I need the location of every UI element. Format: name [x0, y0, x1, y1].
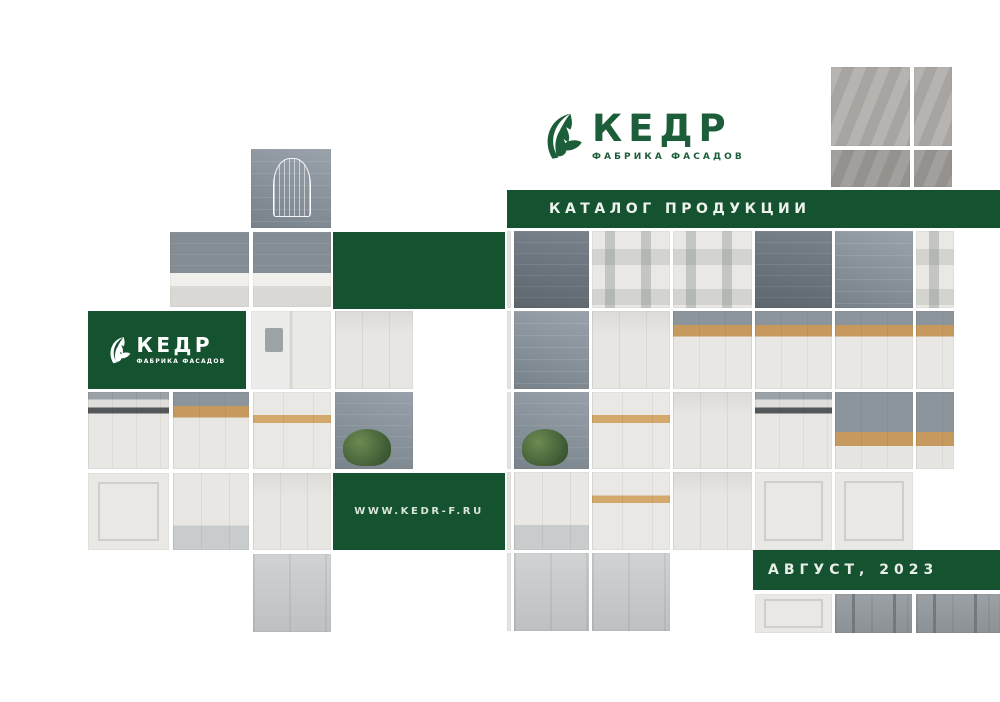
photo-tile: [253, 232, 331, 307]
photo-tile: [173, 473, 249, 550]
photo-tile: [755, 231, 832, 308]
photo-tile: [673, 472, 752, 550]
cedar-tree-icon: [545, 112, 583, 160]
photo-tile-stove: [755, 392, 832, 469]
photo-tile-plant: [514, 392, 589, 469]
photo-tile-fridge: [251, 311, 331, 389]
photo-tile: [335, 311, 413, 389]
photo-tile: [755, 594, 832, 633]
photo-tile: [592, 231, 670, 308]
photo-tile: [507, 311, 511, 389]
photo-tile-cart: [592, 392, 670, 469]
photo-tile: [673, 231, 752, 308]
photo-tile-sink: [835, 392, 913, 469]
side-brand-name: КЕДР: [137, 335, 226, 355]
photo-tile: [507, 553, 511, 631]
photo-tile: [916, 392, 954, 469]
photo-tile: [914, 150, 952, 187]
website-block: WWW.KEDR-F.RU: [333, 473, 505, 550]
photo-tile: [916, 231, 954, 308]
photo-tile: [507, 392, 511, 469]
photo-tile: [831, 150, 910, 187]
photo-tile-birdcage: [251, 149, 331, 228]
photo-tile: [514, 472, 589, 550]
photo-tile: [592, 311, 670, 389]
photo-tile: [755, 311, 832, 389]
photo-tile: [835, 311, 913, 389]
photo-tile: [914, 67, 952, 146]
photo-tile: [592, 472, 670, 550]
photo-tile-floor: [592, 553, 670, 631]
side-brand-tagline: ФАБРИКА ФАСАДОВ: [137, 358, 226, 365]
catalog-title-band: КАТАЛОГ ПРОДУКЦИИ: [507, 190, 1000, 228]
website-url: WWW.KEDR-F.RU: [354, 506, 484, 517]
photo-tile: [831, 67, 910, 146]
photo-tile: [253, 473, 331, 550]
photo-tile: [88, 473, 169, 550]
photo-tile-plant: [335, 392, 413, 469]
issue-date-block: АВГУСТ, 2023: [753, 550, 1000, 590]
photo-tile: [173, 392, 249, 469]
photo-tile: [170, 232, 249, 307]
photo-tile: [507, 231, 511, 308]
photo-tile-stools: [916, 594, 1000, 633]
header-logo: КЕДР ФАБРИКА ФАСАДОВ: [545, 110, 745, 162]
photo-tile-stools: [835, 594, 912, 633]
photo-tile: [514, 311, 589, 389]
issue-date-label: АВГУСТ, 2023: [753, 562, 938, 578]
photo-tile: [673, 311, 752, 389]
photo-tile: [916, 311, 954, 389]
brand-name: КЕДР: [592, 110, 745, 147]
green-accent-block: [333, 232, 505, 309]
photo-tile-cart: [253, 392, 331, 469]
brand-logo-block: КЕДР ФАБРИКА ФАСАДОВ: [88, 311, 246, 389]
photo-tile-floor: [514, 553, 589, 631]
brand-tagline: ФАБРИКА ФАСАДОВ: [592, 152, 745, 162]
photo-tile: [507, 472, 511, 550]
photo-tile: [514, 231, 589, 308]
catalog-title-label: КАТАЛОГ ПРОДУКЦИИ: [507, 201, 811, 217]
photo-tile-hood: [835, 231, 913, 308]
photo-tile: [673, 392, 752, 469]
photo-tile-stove: [88, 392, 169, 469]
photo-tile-island: [835, 472, 913, 550]
photo-tile-island: [755, 472, 832, 550]
cedar-tree-icon: [109, 336, 131, 364]
birdcage-lamp: [273, 158, 310, 217]
photo-tile-floor: [253, 554, 331, 632]
catalog-cover: КАТАЛОГ ПРОДУКЦИИ WWW.KEDR-F.RU АВГУСТ, …: [0, 0, 1000, 702]
